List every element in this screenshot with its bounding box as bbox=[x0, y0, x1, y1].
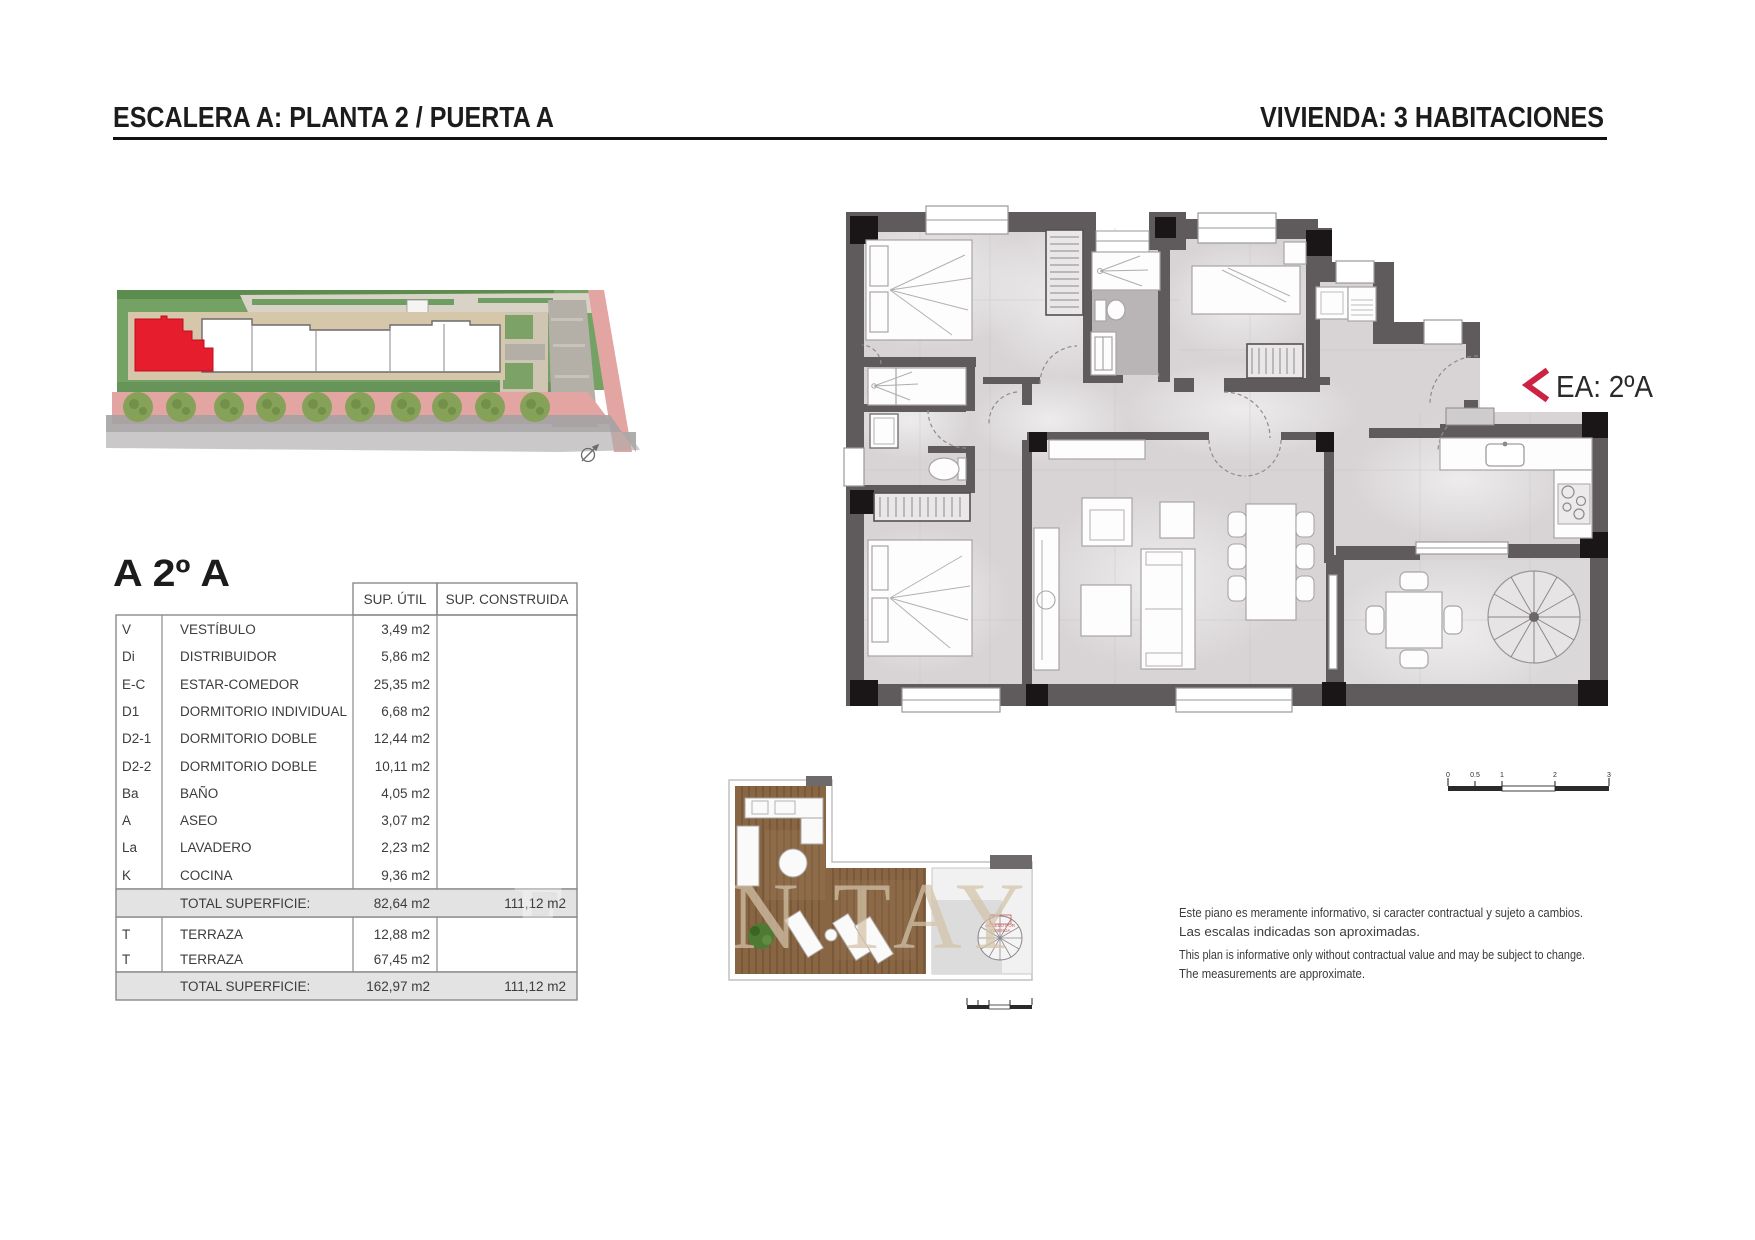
svg-text:Di: Di bbox=[122, 649, 135, 664]
svg-text:67,45 m2: 67,45 m2 bbox=[374, 952, 430, 967]
svg-text:ESTAR-COMEDOR: ESTAR-COMEDOR bbox=[180, 677, 299, 692]
svg-text:La: La bbox=[122, 840, 138, 855]
svg-text:DISTRIBUIDOR: DISTRIBUIDOR bbox=[180, 649, 277, 664]
svg-text:ESCALERA A: PLANTA 2 / PUERTA: ESCALERA A: PLANTA 2 / PUERTA A bbox=[113, 102, 554, 134]
svg-text:T: T bbox=[122, 927, 130, 942]
svg-text:VIVIENDA: 3 HABITACIONES: VIVIENDA: 3 HABITACIONES bbox=[1260, 102, 1604, 134]
svg-text:1: 1 bbox=[1500, 772, 1504, 779]
svg-text:0.5: 0.5 bbox=[1470, 772, 1480, 779]
svg-text:K: K bbox=[122, 868, 131, 883]
svg-text:This plan is informative only: This plan is informative only without co… bbox=[1179, 948, 1585, 962]
svg-text:SUP. ÚTIL: SUP. ÚTIL bbox=[364, 592, 427, 607]
svg-text:Este piano es meramente inform: Este piano es meramente informativo, si … bbox=[1179, 906, 1583, 920]
svg-text:LAVADERO: LAVADERO bbox=[180, 840, 252, 855]
svg-text:D2-1: D2-1 bbox=[122, 731, 151, 746]
svg-text:10,11 m2: 10,11 m2 bbox=[375, 759, 430, 774]
svg-text:4,05 m2: 4,05 m2 bbox=[381, 786, 430, 801]
svg-text:Y: Y bbox=[956, 863, 1025, 969]
svg-text:2,23 m2: 2,23 m2 bbox=[381, 840, 430, 855]
svg-text:DORMITORIO DOBLE: DORMITORIO DOBLE bbox=[180, 731, 317, 746]
svg-text:0: 0 bbox=[1446, 772, 1450, 779]
svg-text:D1: D1 bbox=[122, 704, 139, 719]
svg-text:TERRAZA: TERRAZA bbox=[180, 927, 243, 942]
svg-text:Las escalas indicadas son apro: Las escalas indicadas son aproximadas. bbox=[1179, 925, 1420, 939]
svg-text:82,64 m2: 82,64 m2 bbox=[374, 896, 430, 911]
svg-text:N: N bbox=[730, 863, 799, 969]
svg-text:5,86 m2: 5,86 m2 bbox=[381, 649, 430, 664]
svg-text:6,68 m2: 6,68 m2 bbox=[381, 704, 430, 719]
svg-text:12,88 m2: 12,88 m2 bbox=[374, 927, 430, 942]
svg-text:VESTÍBULO: VESTÍBULO bbox=[180, 622, 256, 637]
svg-text:9,36 m2: 9,36 m2 bbox=[381, 868, 430, 883]
svg-text:A: A bbox=[122, 813, 131, 828]
svg-text:162,97 m2: 162,97 m2 bbox=[366, 979, 430, 994]
svg-text:111,12 m2: 111,12 m2 bbox=[504, 979, 566, 994]
svg-text:3,49 m2: 3,49 m2 bbox=[381, 622, 430, 637]
svg-text:V: V bbox=[122, 622, 131, 637]
svg-text:EA: 2ºA: EA: 2ºA bbox=[1556, 369, 1653, 404]
svg-text:SUP. CONSTRUIDA: SUP. CONSTRUIDA bbox=[446, 592, 569, 607]
svg-text:BAÑO: BAÑO bbox=[180, 786, 218, 801]
svg-text:Ba: Ba bbox=[122, 786, 139, 801]
svg-text:A 2º A: A 2º A bbox=[113, 553, 230, 595]
svg-text:D2-2: D2-2 bbox=[122, 759, 151, 774]
svg-text:A: A bbox=[893, 863, 962, 969]
svg-text:T: T bbox=[833, 863, 891, 969]
svg-text:COCINA: COCINA bbox=[180, 868, 233, 883]
svg-text:E-C: E-C bbox=[122, 677, 146, 692]
svg-text:TOTAL SUPERFICIE:: TOTAL SUPERFICIE: bbox=[180, 979, 310, 994]
svg-text:ASEO: ASEO bbox=[180, 813, 218, 828]
svg-text:3: 3 bbox=[1607, 772, 1611, 779]
svg-text:TOTAL SUPERFICIE:: TOTAL SUPERFICIE: bbox=[180, 896, 310, 911]
svg-text:TERRAZA: TERRAZA bbox=[180, 952, 243, 967]
svg-text:3,07 m2: 3,07 m2 bbox=[381, 813, 430, 828]
svg-text:DORMITORIO INDIVIDUAL: DORMITORIO INDIVIDUAL bbox=[180, 704, 348, 719]
svg-text:The measurements are approxima: The measurements are approximate. bbox=[1179, 967, 1365, 981]
svg-text:25,35 m2: 25,35 m2 bbox=[374, 677, 430, 692]
svg-text:2: 2 bbox=[1553, 772, 1557, 779]
svg-text:E: E bbox=[512, 865, 570, 971]
svg-text:T: T bbox=[122, 952, 130, 967]
svg-text:DORMITORIO DOBLE: DORMITORIO DOBLE bbox=[180, 759, 317, 774]
svg-text:12,44 m2: 12,44 m2 bbox=[374, 731, 430, 746]
